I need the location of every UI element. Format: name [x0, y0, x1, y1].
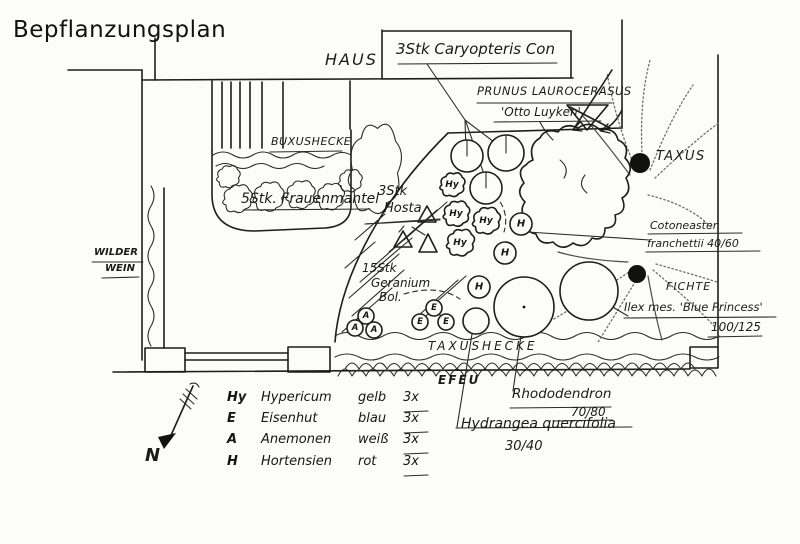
hypericum-marker: Hy: [449, 209, 462, 219]
corner-post: [690, 347, 718, 368]
ilex-circle: [560, 262, 618, 320]
prunus-label-line1: PRUNUS LAUROCERASUS: [477, 86, 632, 98]
fence-post-left: [145, 348, 185, 372]
legend-symbol: Hy: [227, 390, 261, 405]
legend-plant: Anemonen: [261, 432, 358, 447]
anemone-marker: A: [352, 323, 359, 333]
cotoneaster-label-line1: Cotoneaster: [650, 220, 717, 231]
legend-plant: Eisenhut: [261, 411, 358, 426]
hypericum-marker: Hy: [445, 180, 458, 190]
legend-plant: Hortensien: [261, 454, 358, 469]
fichte-dot: [628, 265, 646, 283]
cotoneaster-label-line2: franchettii 40/60: [647, 238, 739, 249]
legend-color: blau: [358, 411, 403, 426]
hortensie-marker: H: [475, 282, 483, 293]
prunus-cloud: [520, 124, 631, 247]
buxushecke-label: BUXUSHECKE: [271, 136, 351, 147]
fichte-label: FICHTE: [666, 281, 711, 292]
legend-color: gelb: [358, 390, 403, 405]
legend-symbol: H: [227, 454, 261, 469]
taxushecke-label: TAXUSHECKE: [428, 340, 538, 352]
legend-symbol: A: [227, 432, 261, 447]
legend-row: HyHypericumgelb3x: [227, 390, 457, 405]
fence-post-right: [288, 347, 330, 372]
legend-plant: Hypericum: [261, 390, 358, 405]
wilder-wein-label-line1: WILDER: [94, 248, 138, 258]
page-title: Bepflanzungsplan: [13, 17, 226, 43]
crossed-marker: [567, 70, 612, 131]
hosta-label-line2: Hosta: [384, 202, 422, 215]
eisenhut-marker: E: [417, 317, 423, 327]
north-label: N: [145, 447, 160, 465]
prunus-label-line2: 'Otto Luyken': [501, 106, 581, 118]
legend-count: 3x: [403, 411, 419, 426]
ilex-label-line2: 100/125: [711, 321, 761, 333]
geranium-label-line2: Geranium: [371, 277, 430, 289]
taxus-label: TAXUS: [656, 150, 706, 163]
taxus-dot: [630, 153, 650, 173]
hydrangea-label-line2: 30/40: [505, 440, 542, 453]
caryopteris-label: 3Stk Caryopteris Con: [396, 42, 555, 57]
frauenmantel-label: 5Stk. Frauenmantel: [241, 192, 379, 206]
planting-plan-scan: Bepflanzungsplan HAUS 3Stk Caryopteris C…: [0, 0, 800, 544]
eisenhut-marker: E: [431, 303, 437, 313]
wild-vine-squiggle: [148, 186, 154, 346]
hosta-label-line1: 3Stk: [378, 185, 407, 198]
wilder-wein-label-line2: WEIN: [105, 264, 135, 274]
ilex-label-line1: Ilex mes. 'Blue Princess': [624, 302, 763, 314]
hypericum-marker: Hy: [453, 238, 466, 248]
legend-row: AAnemonenweiß3x: [227, 432, 457, 447]
cotoneaster-leader: [512, 231, 650, 240]
plant-circles: [347, 135, 618, 338]
hydrangea-circle: [463, 308, 489, 334]
legend-count: 3x: [403, 454, 419, 469]
eisenhut-marker: E: [443, 317, 449, 327]
house-label: HAUS: [325, 52, 378, 68]
rhododendron-label-line1: Rhododendron: [512, 388, 611, 402]
anemone-marker: A: [371, 325, 378, 335]
legend-count: 3x: [403, 390, 419, 405]
legend-count: 3x: [403, 432, 419, 447]
efeu-label: EFEU: [438, 374, 480, 386]
legend-row: HHortensienrot3x: [227, 454, 457, 469]
anemone-marker: A: [363, 311, 370, 321]
hydrangea-label-line1: Hydrangea quercifolia: [461, 417, 616, 431]
hypericum-marker: Hy: [479, 216, 492, 226]
geranium-label-line1: 15Stk: [362, 262, 397, 274]
legend-color: weiß: [358, 432, 403, 447]
legend-color: rot: [358, 454, 403, 469]
north-arrow: [158, 383, 199, 449]
hortensie-marker: H: [517, 219, 525, 230]
legend-row: EEisenhutblau3x: [227, 411, 457, 426]
legend-symbol: E: [227, 411, 261, 426]
hortensie-marker: H: [501, 248, 509, 259]
geranium-label-line3: Bol.: [379, 291, 402, 303]
